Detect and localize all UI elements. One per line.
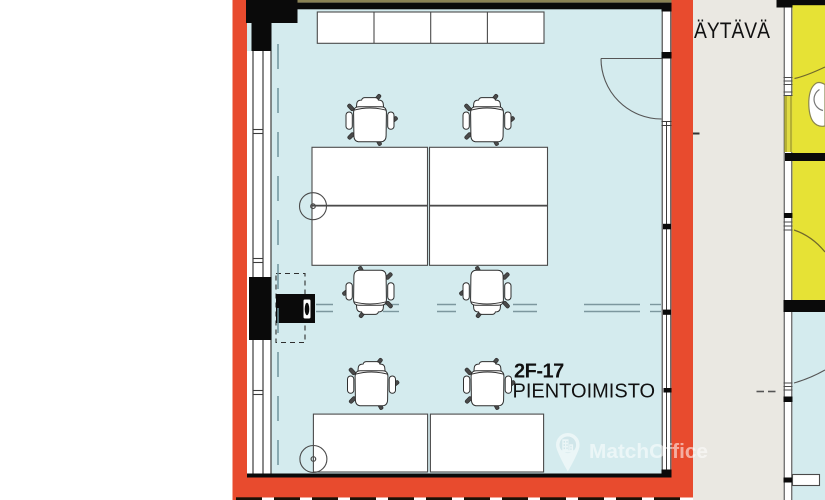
svg-text:2F-17: 2F-17 xyxy=(514,361,564,383)
svg-text:ÄYTÄVÄ: ÄYTÄVÄ xyxy=(694,18,770,43)
svg-text:PIENTOIMISTO: PIENTOIMISTO xyxy=(513,381,656,403)
svg-text:MatchOffice: MatchOffice xyxy=(589,441,708,463)
